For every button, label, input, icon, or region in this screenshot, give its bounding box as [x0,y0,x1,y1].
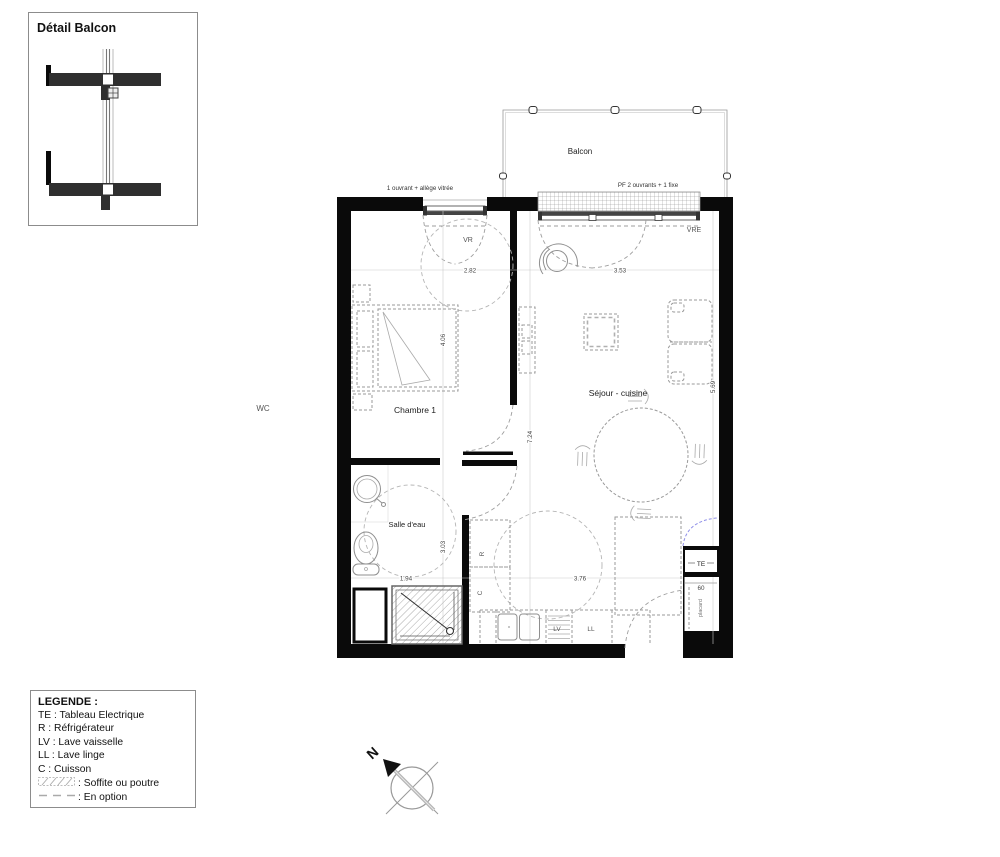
legend-item-te: TE : Tableau Electrique [38,709,195,722]
dim-kitchen-width: 3.76 [574,576,587,583]
option-dash-icon [38,790,76,801]
legend-title: LEGENDE : [38,696,195,708]
cooktop-label: C [477,590,484,595]
dining-table [575,389,708,522]
coffee-table [584,314,618,350]
legend-option-text: : En option [78,792,127,803]
window-bedroom [423,200,487,264]
slab-glazing-gap [103,185,113,195]
electrical-panel: TE [683,546,719,577]
legend-item-soffite: : Soffite ou poutre [38,776,195,790]
dim-bathroom-width: 1.94 [400,576,413,583]
legend-item-dishwasher: LV : Lave vaisselle [38,736,195,749]
shower-drain [447,628,454,635]
balcony-detail-title: Détail Balcon [29,13,197,35]
option-cabinet [615,517,681,615]
bedroom-door [463,405,513,455]
legend-item-washer: LL : Lave linge [38,749,195,762]
toilet [353,532,379,575]
soffite-band [538,192,700,211]
legend-item-cooktop: C : Cuisson [38,763,195,776]
lower-slab-stem [101,196,110,210]
entry-door-arc [625,590,683,648]
dishwasher-label: LV [553,626,561,633]
legend-item-fridge: R : Réfrigérateur [38,722,195,735]
window-living [538,192,700,268]
bathroom-label: Salle d'eau [389,520,426,529]
sofa [668,300,712,384]
soffite-hatch-icon [38,776,76,787]
dim-bathroom-depth: 3.03 [440,540,447,553]
legend-soffite-text: : Soffite ou poutre [78,778,159,789]
kitchen-sink [498,614,540,640]
dim-living-width: 3.53 [614,268,627,275]
legend-item-option: : En option [38,790,195,804]
option-circle-hall [364,485,456,577]
option-circle-bedroom [421,219,513,311]
window2-label: PF 2 ouvrants + 1 fixe [618,182,679,189]
floorplan-page: Détail Balcon [0,0,1000,857]
vre-label: VRE [687,227,702,234]
legend-panel: LEGENDE : TE : Tableau Electrique R : Ré… [30,690,196,808]
lower-slab-flange [46,151,51,185]
apartment-floorplan: Balcon 1 ouvrant + allège vitrée PF 2 ou… [230,80,760,690]
dim-bedroom-width: 2.82 [464,268,477,275]
nightstand [353,394,372,410]
bedroom-label: Chambre 1 [394,405,436,415]
washbasin [354,476,386,507]
armchair [539,244,577,274]
te-label: TE [697,561,706,568]
compass-needle-highlight [394,770,434,810]
balcony-detail-drawing [29,35,195,217]
washer-label: LL [587,626,595,633]
wc-label: WC [256,404,270,413]
balcony-posts [500,107,731,180]
nightstand [353,285,370,302]
closet-label: placard [698,599,704,617]
north-compass: N [358,738,458,830]
duct-shaft [354,589,386,642]
balcony-label: Balcon [568,147,592,156]
window1-label: 1 ouvrant + allège vitrée [387,185,454,192]
dim-overall-depth: 7.24 [527,430,534,443]
north-label: N [363,744,381,763]
bathroom-door-arc [463,466,517,520]
living-label: Séjour - cuisine [589,388,648,398]
bed [352,305,458,391]
dim-te-width: 60 [697,585,705,592]
vr-label: VR [463,237,473,244]
bathroom-tiles [351,465,388,522]
balcony-detail-panel: Détail Balcon [28,12,198,226]
slab-glazing-gap [103,75,113,85]
tv-unit [519,307,535,373]
fridge-label: R [479,551,486,556]
shower [392,586,462,644]
cooktop-zone [470,567,510,612]
dim-living-depth: 5.69 [710,380,717,393]
dim-bedroom-depth: 4.06 [440,333,447,346]
te-door-arc [683,518,717,546]
fridge-zone [470,520,510,567]
